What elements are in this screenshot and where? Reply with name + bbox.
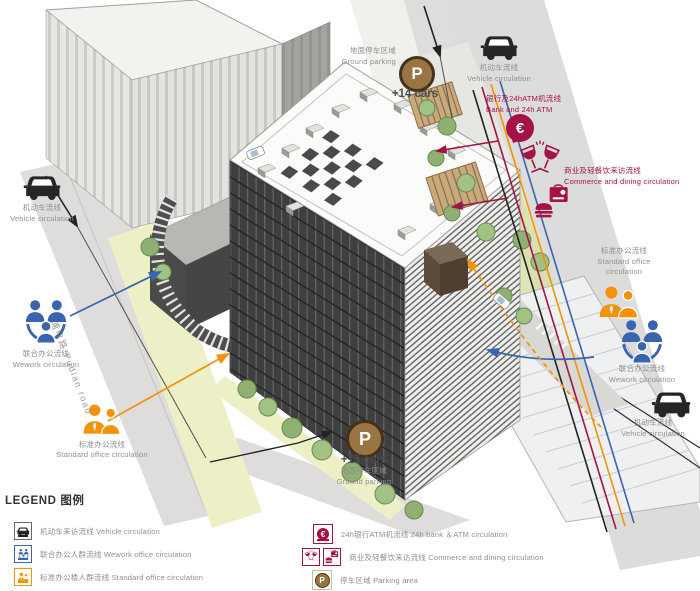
- parking-p-badge-top: P: [399, 56, 435, 92]
- legend-label: 标准办公楼人群流线 Standard office circulation: [40, 572, 203, 583]
- legend-row-wework: 联合办公人群流线 Wework office circulation: [14, 545, 192, 563]
- legend-row-standard: 标准办公楼人群流线 Standard office circulation: [14, 568, 203, 586]
- legend-box-standard: [14, 568, 32, 586]
- parking-p-mini-badge: P: [315, 573, 330, 588]
- legend-box-bank: €: [313, 524, 333, 544]
- annotation-vehicle-left: 机动车流线 Vehicle circulation: [0, 172, 84, 224]
- dining-icon: [325, 550, 339, 563]
- label-zh: 机动车流线: [634, 418, 673, 428]
- annotation-standard-left: 标准办公流线 Standard office circulation: [56, 402, 148, 460]
- legend-box-vehicle: [14, 522, 32, 540]
- route-line-sample: [18, 558, 28, 560]
- route-line-sample: [18, 581, 28, 583]
- dining-icon: [534, 184, 570, 218]
- site-plan-illustration: [0, 0, 700, 591]
- wework-group-icon: [20, 296, 72, 348]
- legend-label: 联合办公人群流线 Wework office circulation: [40, 549, 192, 560]
- route-line-sample: [18, 535, 28, 537]
- legend-box-food: [323, 548, 341, 566]
- annotation-ground-parking-top: 地面停车区域 Ground parking: [330, 46, 396, 67]
- euro-symbol: €: [516, 120, 524, 137]
- legend-label: 停车区域 Parking area: [340, 575, 418, 586]
- label-zh: 机动车流线: [480, 63, 519, 73]
- legend-row-commerce: 商业及轻餐饮来访流线 Commerce and dining circulati…: [302, 548, 544, 566]
- car-icon: [479, 32, 519, 62]
- annotation-ground-parking-bottom: 地面停车区域 Ground parking: [328, 466, 400, 487]
- legend-label: 24h银行ATM机流线 24h bank ＆ATM circulation: [341, 529, 507, 540]
- legend-box-wework: [14, 545, 32, 563]
- annotation-vehicle-right: 机动车流线 Vehicle circulation: [612, 418, 694, 439]
- annotation-wework-left: 联合办公流线 Wework circulation: [4, 296, 88, 370]
- label-en: Ground parking: [337, 477, 392, 487]
- annotation-wework-right: 联合办公流线 Wework circulation: [604, 364, 680, 385]
- label-en: Ground parking: [342, 57, 397, 67]
- parking-count-top: +14 cars: [382, 88, 448, 100]
- label-en: Wework circulation: [609, 375, 675, 385]
- wine-glasses-icon: [518, 140, 562, 186]
- label-zh: 联合办公流线: [619, 364, 665, 374]
- label-en: Wework circulation: [13, 360, 79, 370]
- label-en: Vehicle circulation: [467, 74, 531, 84]
- label-zh: 标准办公流线: [601, 246, 647, 256]
- legend-row-parking: P 停车区域 Parking area: [312, 570, 418, 590]
- legend-row-vehicle: 机动车来访流线 Vehicle circulation: [14, 522, 160, 540]
- annotation-bank-atm: 银行及24hATM机流线 Bank and 24h ATM: [486, 94, 606, 115]
- site-circulation-diagram: 浦电路 Pudian road 机动车流线 Vehicle circulatio…: [0, 0, 700, 591]
- euro-bubble-icon: €: [506, 114, 534, 142]
- route-line-sample: [317, 539, 329, 541]
- label-en: Standard office circulation: [586, 257, 662, 277]
- label-en: Standard office circulation: [56, 450, 148, 460]
- label-zh: 联合办公流线: [23, 349, 69, 359]
- label-zh: 地面停车区域: [350, 46, 396, 56]
- legend-label: 机动车来访流线 Vehicle circulation: [40, 526, 160, 537]
- wework-group-icon: [616, 316, 668, 368]
- annotation-standard-right: 标准办公流线 Standard office circulation: [586, 246, 662, 276]
- legend-box-parking: P: [312, 570, 332, 590]
- label-en: Vehicle circulation: [621, 429, 685, 439]
- annotation-commerce: 商业及轻餐饮来访流线 Commerce and dining circulati…: [564, 166, 694, 187]
- parking-count-bottom: +15 cars: [326, 454, 402, 466]
- euro-badge-icon: €: [317, 528, 329, 540]
- label-zh: 机动车流线: [23, 203, 62, 213]
- legend-title: LEGEND 图例: [5, 492, 85, 508]
- label-zh: 商业及轻餐饮来访流线: [564, 166, 641, 176]
- label-zh: 标准办公流线: [79, 440, 125, 450]
- label-zh: 银行及24hATM机流线: [486, 94, 561, 104]
- label-en: Vehicle circulation: [10, 214, 74, 224]
- annotation-vehicle-top: 机动车流线 Vehicle circulation: [460, 32, 538, 84]
- standard-office-people-icon: [80, 402, 124, 439]
- parking-p-badge-bottom: P: [346, 420, 384, 458]
- car-icon: [650, 388, 692, 420]
- wine-glasses-icon: [304, 550, 318, 565]
- legend-row-bank: € 24h银行ATM机流线 24h bank ＆ATM circulation: [313, 524, 507, 544]
- label-zh: 地面停车区域: [341, 466, 387, 476]
- legend-box-wine: [302, 548, 320, 566]
- legend-label: 商业及轻餐饮来访流线 Commerce and dining circulati…: [349, 552, 544, 563]
- car-icon: [22, 172, 62, 202]
- label-en: Commerce and dining circulation: [564, 177, 679, 187]
